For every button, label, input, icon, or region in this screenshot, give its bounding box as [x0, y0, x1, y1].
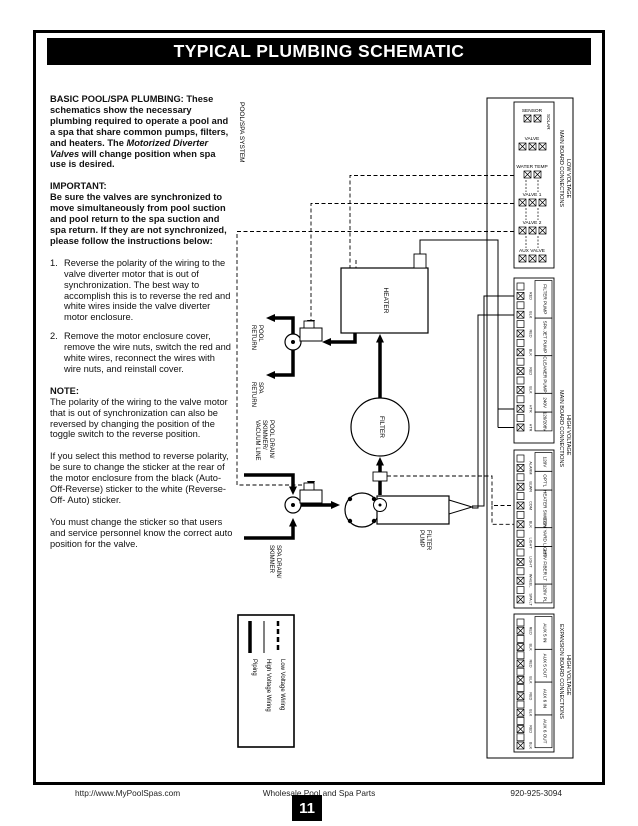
filter-pump-label: FILTER: [425, 530, 431, 551]
page-title: TYPICAL PLUMBING SCHEMATIC: [47, 38, 591, 65]
note-body: The polarity of the wiring to the valve …: [50, 397, 228, 440]
terminal-group-label: 120/208V: [543, 412, 548, 433]
heater-label: HEATER: [382, 288, 389, 314]
pool-drain-label: VACUUM LINE: [254, 420, 260, 461]
terminal-group-label: CLEANER PUMP: [543, 356, 548, 392]
important-paragraph: IMPORTANT: Be sure the valves are synchr…: [50, 181, 233, 246]
terminal-empty: [517, 530, 524, 537]
low-voltage-header: MAIN BOARD CONNECTIONS: [558, 130, 564, 207]
terminal-empty: [517, 415, 524, 422]
expansion-header: EXPANSION BOARD CONNECTIONS: [558, 624, 564, 719]
pressure-switch: [373, 472, 387, 481]
valve-stem: [291, 503, 295, 507]
wire-color-label: HTR: [529, 405, 533, 413]
expansion-header: HIGH VOLTAGE: [565, 655, 571, 696]
legend-label-high-voltage: High Voltage Wiring: [265, 659, 271, 712]
arrow-into-suction-valve-bottom: [289, 518, 297, 527]
wire-color-label: RED: [529, 329, 533, 337]
instructions-column: BASIC POOL/SPA PLUMBING: These schematic…: [50, 94, 233, 561]
page-title-text: TYPICAL PLUMBING SCHEMATIC: [174, 41, 465, 62]
pipe-pool-drain: [244, 475, 293, 488]
page-number: 11: [292, 795, 322, 821]
terminal-empty: [517, 455, 524, 462]
strip-row-label: VALVE 2: [523, 220, 542, 226]
wire-color-label: WHEEL: [529, 574, 533, 588]
arrow-into-heater: [376, 334, 384, 343]
system-label: POOL/SPA SYSTEM: [238, 102, 245, 163]
terminal-group-label: AUX 5 IN: [543, 623, 548, 642]
list-item: 2. Remove the motor enclosure cover, rem…: [50, 331, 233, 375]
pipe-spa-return: [274, 349, 293, 375]
terminal-empty: [517, 619, 524, 626]
low-voltage-wire-heater-switch-blk: [492, 506, 514, 525]
wire-color-label: LIGHT: [529, 538, 533, 550]
list-number: 1.: [50, 258, 64, 323]
solar-label: SOLAR: [546, 114, 551, 130]
wire-color-label: BLK: [529, 742, 533, 750]
strip-row-label: VALVE: [525, 136, 540, 142]
schematic-diagram: POOL/SPA SYSTEM: [230, 90, 602, 780]
legend-label-piping: Piping: [251, 659, 257, 676]
pump-motor-body: [377, 496, 449, 524]
terminal-empty: [517, 668, 524, 675]
terminal-empty: [517, 474, 524, 481]
pool-return-label: POOL: [257, 325, 263, 342]
wire-color-label: LIGHT: [529, 556, 533, 568]
basic-plumbing-heading: BASIC POOL/SPA PLUMBING:: [50, 94, 184, 104]
terminal-group-label: 240V: [543, 397, 548, 409]
wire-color-label: ALARM: [529, 461, 533, 474]
footer-url: http://www.MyPoolSpas.com: [75, 788, 180, 798]
note-paragraph: NOTE: The polarity of the wiring to the …: [50, 386, 233, 441]
sticker-paragraph: If you select this method to reverse pol…: [50, 451, 233, 506]
strip-row-label: SENSOR: [522, 108, 543, 114]
terminal-group-label: 120V: [543, 457, 548, 469]
change-sticker-paragraph: You must change the sticker so that user…: [50, 517, 233, 550]
wire-color-label: BLK: [529, 386, 533, 394]
terminal-group-label: AUX 5 OUT: [543, 654, 548, 678]
spa-drain-label: SPA DRAIN/: [275, 545, 281, 579]
valve-motor: [300, 328, 322, 341]
low-voltage-header: LOW VOLTAGE: [565, 159, 571, 199]
pump-bolt: [372, 519, 376, 523]
wire-color-label: BLK: [529, 676, 533, 684]
wire-color-label: BLK: [529, 311, 533, 319]
pipe-spa-drain: [244, 525, 293, 538]
terminal-empty: [517, 358, 524, 365]
wire-color-label: RED: [529, 367, 533, 375]
pool-return-label: RETURN: [250, 325, 256, 350]
high-voltage-header: MAIN BOARD CONNECTIONS: [558, 390, 564, 467]
arrow-pool-return: [266, 314, 275, 322]
wire-color-label: BLK: [529, 521, 533, 529]
arrow-into-pump: [331, 501, 340, 509]
footer-phone: 920-925-3094: [510, 788, 562, 798]
terminal-empty: [517, 685, 524, 692]
arrow-into-return-valve: [322, 338, 331, 346]
low-voltage-wire-watertemp: [350, 176, 514, 269]
pump-inlet-center: [379, 504, 382, 507]
valve-motor-cap: [304, 321, 314, 328]
spa-drain-label: SKIMMER: [268, 545, 274, 574]
wire-color-label: BLK: [529, 644, 533, 652]
wire-color-label: RED: [529, 659, 533, 667]
terminal-group-label: 120V PL: [543, 585, 548, 603]
terminal-group-label: 120V FIBER LT: [543, 549, 548, 581]
pump-wiring-cone: [449, 500, 472, 514]
terminal-empty: [517, 549, 524, 556]
list-item: 1. Reverse the polarity of the wiring to…: [50, 258, 233, 323]
wire-color-label: BLWR: [529, 481, 533, 492]
wire-color-label: RED: [529, 292, 533, 300]
terminal-group-label: FILTER PUMP: [543, 284, 548, 314]
pool-drain-label: SKIMMER/: [261, 420, 267, 450]
terminal-empty: [517, 734, 524, 741]
wire-color-label: RED: [529, 692, 533, 700]
important-heading: IMPORTANT:: [50, 181, 233, 192]
terminal-empty: [517, 377, 524, 384]
arrow-into-filter: [376, 457, 384, 466]
wire-color-label: RED: [529, 725, 533, 733]
high-voltage-header: HIGH VOLTAGE: [565, 415, 571, 456]
wire-color-label: COM: [529, 501, 533, 510]
valve-motor: [300, 490, 322, 503]
wire-color-label: RED: [529, 627, 533, 635]
filter-label: FILTER: [378, 416, 385, 438]
wire-color-label: BLK: [529, 709, 533, 717]
filter-pump: [345, 493, 472, 527]
terminal-empty: [517, 568, 524, 575]
high-voltage-wire-pump-blk: [472, 315, 514, 508]
pump-bolt: [348, 519, 352, 523]
pump-bolt: [348, 497, 352, 501]
valve-stem: [291, 340, 295, 344]
filter-pump-label: PUMP: [418, 530, 424, 547]
terminal-empty: [517, 652, 524, 659]
wire-color-label: SPA LT: [529, 593, 533, 606]
list-text: Remove the motor enclosure cover, remove…: [64, 331, 233, 375]
valve-motor-cap: [304, 483, 314, 490]
terminal-empty: [517, 321, 524, 328]
return-diverter-valve: [285, 321, 322, 350]
legend-label-low-voltage: Low Voltage Wiring: [279, 659, 285, 710]
terminal-group-label: SPA JET PUMP: [543, 321, 548, 354]
spa-return-label: RETURN: [250, 382, 256, 407]
terminal-empty: [517, 302, 524, 309]
terminal-group-label: OPT'L: [543, 474, 548, 487]
arrow-spa-return: [266, 371, 275, 379]
basic-plumbing-paragraph: BASIC POOL/SPA PLUMBING: These schematic…: [50, 94, 233, 170]
wire-color-label: BLK: [529, 349, 533, 357]
pool-drain-label: POOL DRAIN/: [268, 420, 274, 459]
terminal-empty: [517, 635, 524, 642]
legend-box: Piping High Voltage Wiring Low Voltage W…: [238, 615, 294, 747]
spa-return-label: SPA: [257, 382, 263, 394]
terminal-empty: [517, 283, 524, 290]
terminal-empty: [517, 493, 524, 500]
wire-color-label: HTR: [529, 424, 533, 432]
terminal-empty: [517, 339, 524, 346]
high-voltage-wire-heater: [420, 240, 498, 428]
terminal-empty: [517, 396, 524, 403]
terminal-group-label: AUX 6 OUT: [543, 719, 548, 743]
page-number-text: 11: [299, 800, 315, 817]
terminal-empty: [517, 587, 524, 594]
important-body: Be sure the valves are synchronized to m…: [50, 192, 227, 246]
pipe-heater-to-valve: [330, 333, 355, 342]
note-heading: NOTE:: [50, 386, 233, 397]
pipe-pool-return: [274, 318, 293, 335]
list-number: 2.: [50, 331, 64, 375]
arrow-into-suction-valve-top: [289, 487, 297, 496]
terminal-empty: [517, 511, 524, 518]
strip-row-label: VALVE 1: [523, 192, 542, 198]
list-text: Reverse the polarity of the wiring to th…: [64, 258, 233, 323]
manual-page: { "title": "TYPICAL PLUMBING SCHEMATIC",…: [0, 0, 638, 826]
strip-row-label: AUX VALVE: [519, 248, 545, 254]
terminal-empty: [517, 701, 524, 708]
terminal-group-label: AUX 6 IN: [543, 689, 548, 708]
strip-row-label: WATER TEMP: [516, 164, 547, 170]
high-voltage-wires: [420, 240, 514, 508]
terminal-empty: [517, 717, 524, 724]
heater-conduit: [414, 254, 426, 268]
